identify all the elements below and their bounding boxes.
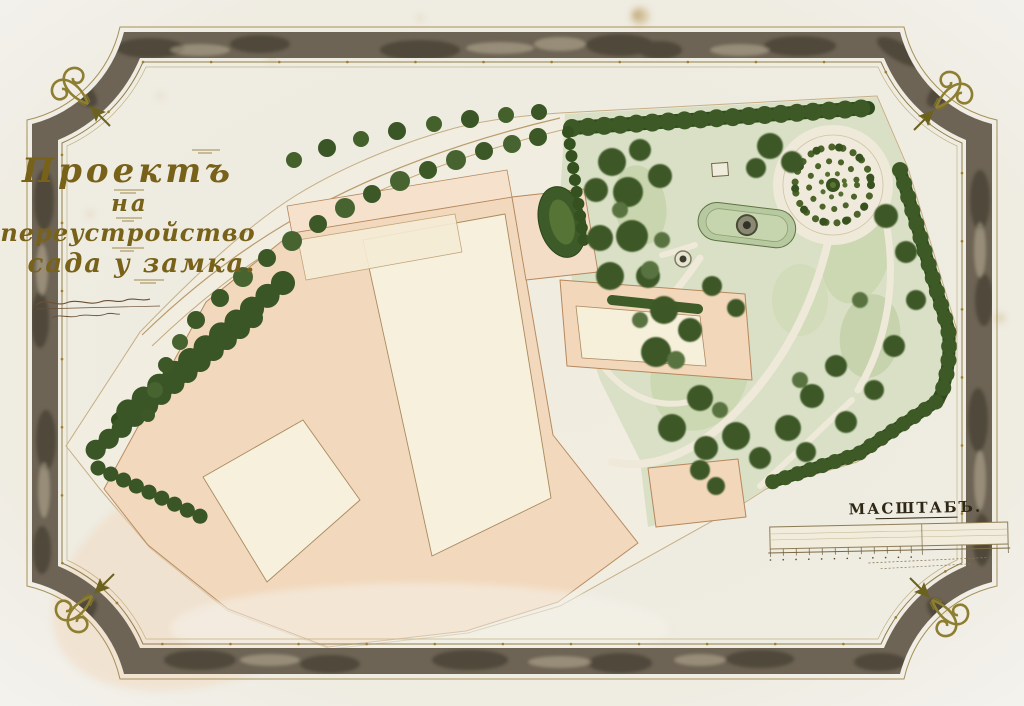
title-line-2: на: [111, 190, 149, 217]
scale-label: МАСШТАБЪ.: [848, 498, 982, 519]
garden-pavilion: [712, 162, 729, 176]
fountain-small: [675, 251, 691, 267]
garden-plan-map: Проектъ на переустройство сада у замка. …: [0, 0, 1024, 706]
title-line-3: переустройство: [0, 218, 255, 247]
circular-parterre: [783, 135, 883, 235]
scanned-garden-plan: Проектъ на переустройство сада у замка. …: [0, 0, 1024, 706]
title-line-4: сада у замка.: [28, 249, 257, 279]
title-line-1: Проектъ: [21, 151, 234, 191]
